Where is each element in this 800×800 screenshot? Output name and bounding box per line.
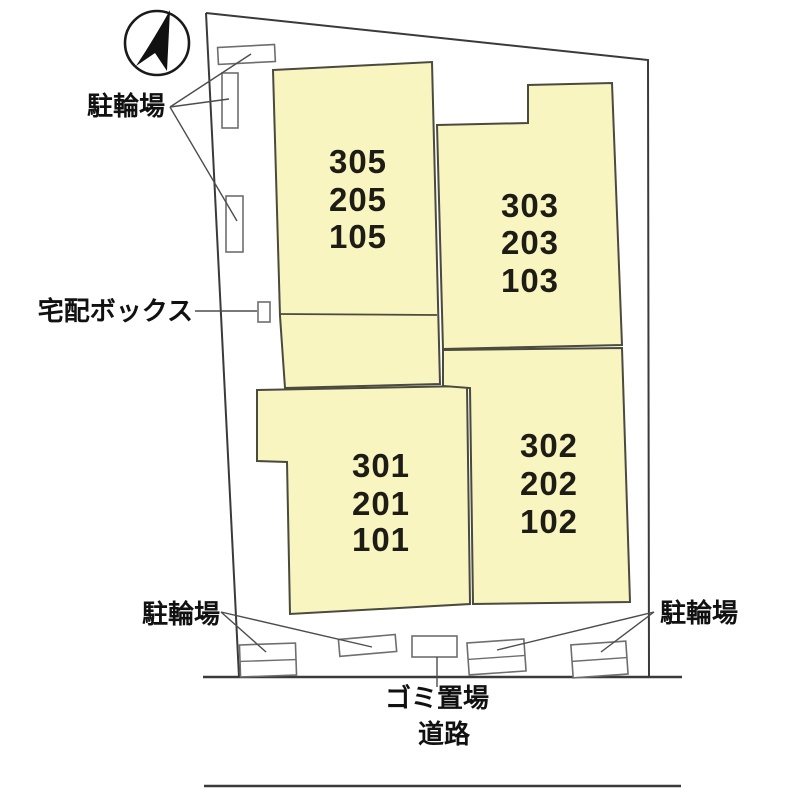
unit-label-201: 201 <box>352 485 410 522</box>
unit-label-305: 305 <box>329 143 387 180</box>
unit-label-302: 302 <box>520 427 578 464</box>
bicycle-parking-rect-7 <box>571 641 628 678</box>
delivery-box-group <box>195 302 270 322</box>
unit-label-101: 101 <box>352 521 410 558</box>
unit-label-105: 105 <box>329 218 387 255</box>
unit-label-301: 301 <box>352 447 410 484</box>
bicycle-parking-bottom-left-label: 駐輪場 <box>142 599 220 629</box>
garbage-area-label: ゴミ置場 <box>385 683 489 713</box>
bicycle-parking-rect-3 <box>226 196 243 252</box>
compass-needle <box>136 10 170 71</box>
bicycle-parking-top-group <box>170 44 275 252</box>
delivery-box-rect <box>258 302 270 322</box>
unit-label-103: 103 <box>501 262 559 299</box>
unit-label-303: 303 <box>501 187 559 224</box>
site-plan-svg: 305 205 105 303 203 103 301 201 101 302 … <box>0 0 800 800</box>
garbage-area-rect <box>412 636 457 657</box>
unit-label-205: 205 <box>329 181 387 218</box>
north-arrow-icon <box>125 10 189 75</box>
bicycle-parking-rect-1 <box>218 44 276 64</box>
bicycle-parking-bottom-right-label: 駐輪場 <box>660 598 738 628</box>
unit-label-203: 203 <box>501 224 559 261</box>
unit-label-102: 102 <box>520 503 578 540</box>
delivery-box-label: 宅配ボックス <box>38 296 193 326</box>
bottom-facilities <box>221 612 654 687</box>
bicycle-parking-rect-2 <box>222 73 238 128</box>
road-label: 道路 <box>418 719 471 749</box>
bicycle-parking-top-label: 駐輪場 <box>87 91 165 121</box>
building-west-divider <box>279 314 437 315</box>
bicycle-parking-rect-4 <box>239 643 296 677</box>
site-plan-page: 305 205 105 303 203 103 301 201 101 302 … <box>0 0 800 800</box>
unit-label-202: 202 <box>520 465 578 502</box>
